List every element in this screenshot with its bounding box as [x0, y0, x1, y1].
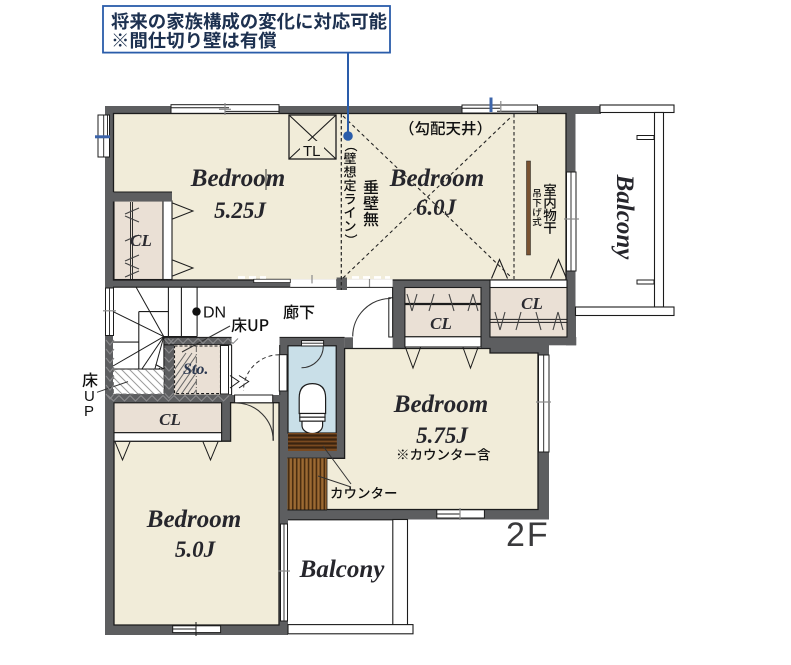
- svg-text:Bedroom: Bedroom: [389, 165, 484, 192]
- svg-text:5.75J: 5.75J: [416, 423, 469, 448]
- svg-text:DN: DN: [203, 305, 226, 322]
- svg-text:Sto.: Sto.: [183, 361, 208, 378]
- svg-text:5.25J: 5.25J: [214, 198, 267, 223]
- svg-text:Bedroom: Bedroom: [146, 506, 241, 533]
- svg-text:Bedroom: Bedroom: [190, 165, 285, 192]
- svg-text:2F: 2F: [506, 516, 550, 554]
- svg-text:Bedroom: Bedroom: [393, 391, 488, 418]
- svg-text:6.0J: 6.0J: [416, 195, 458, 220]
- svg-text:CL: CL: [130, 231, 152, 250]
- svg-text:CL: CL: [430, 314, 452, 333]
- svg-text:CL: CL: [159, 410, 181, 429]
- svg-text:CL: CL: [521, 294, 543, 313]
- svg-text:P: P: [84, 403, 94, 420]
- svg-text:Balcony: Balcony: [299, 556, 386, 583]
- svg-text:Balcony: Balcony: [611, 174, 638, 261]
- svg-text:5.0J: 5.0J: [175, 537, 217, 562]
- svg-text:TL: TL: [303, 143, 321, 160]
